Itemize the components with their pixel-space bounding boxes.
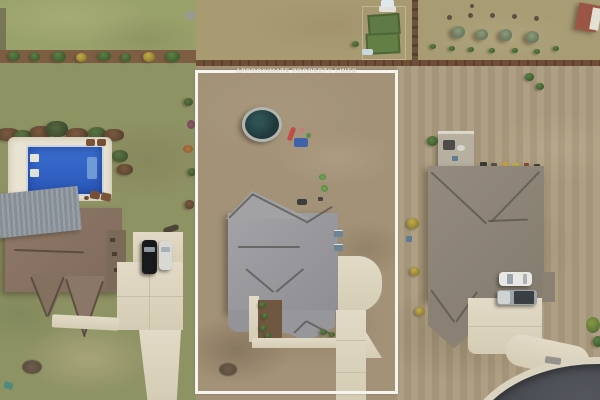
orchard-bush: [430, 44, 436, 49]
orchard-bush: [553, 46, 559, 51]
window: [112, 252, 117, 256]
dormant-shrub: [447, 15, 452, 20]
fence-left-edge: [0, 8, 6, 56]
boundary-shrub: [187, 120, 195, 129]
patio-table: [457, 145, 465, 151]
side-table: [84, 196, 89, 200]
orchard-bush: [534, 49, 540, 54]
hedge-bush: [98, 51, 111, 61]
left-house-metal-roof: [0, 186, 82, 238]
hedgerow-tree: [46, 121, 68, 137]
orchard-bush: [468, 47, 474, 52]
white-trailer: [381, 0, 394, 7]
garden-bench: [362, 49, 373, 55]
dormant-shrub: [512, 14, 517, 19]
pool-ladder-end: [87, 157, 97, 179]
hedge-bush: [30, 52, 40, 61]
patio-furniture: [443, 140, 455, 150]
yellow-bush: [415, 307, 425, 316]
orchard-bush: [449, 46, 455, 51]
window: [110, 238, 115, 242]
dormant-shrub: [490, 13, 495, 18]
hedge-bush: [121, 53, 131, 62]
expansion-joint: [117, 296, 183, 297]
lawn-bush: [536, 83, 544, 90]
pool-step: [30, 169, 39, 177]
lawn-bush: [525, 73, 534, 81]
property-lines-label: APPROXIMATE PROPERTY LINES: [196, 68, 397, 75]
utility-box: [406, 236, 412, 242]
orchard-bush: [512, 48, 518, 53]
rock: [185, 11, 196, 20]
white-car: [159, 241, 172, 270]
expansion-joint: [468, 326, 542, 327]
orchard-bush: [352, 41, 359, 47]
orchard-tree: [526, 31, 539, 43]
truck-bed: [514, 291, 534, 304]
lounge-chair: [97, 139, 106, 146]
boundary-shrub: [185, 200, 194, 209]
dormant-shrub: [468, 13, 473, 18]
right-house-side-bump: [542, 272, 555, 302]
side-yard-tree: [117, 164, 133, 175]
lounge-chair: [89, 190, 100, 199]
white-car: [499, 272, 532, 286]
orchard-tree: [452, 26, 465, 38]
pasture-top-left: [0, 0, 196, 57]
property-line-overlay: [195, 70, 398, 394]
black-suv: [142, 240, 157, 274]
orchard-bush: [489, 48, 495, 53]
car-rear-window: [523, 274, 527, 284]
aerial-photo: APPROXIMATE PROPERTY LINES: [0, 0, 600, 400]
back-bush: [427, 136, 438, 146]
yellow-bush: [407, 218, 419, 229]
patio-item: [452, 156, 458, 161]
orchard-tree: [476, 29, 488, 40]
roadside-bush: [593, 336, 600, 347]
car-windshield: [161, 247, 170, 252]
yellow-bush: [410, 267, 420, 276]
hedge-bush: [166, 51, 180, 62]
pool-step: [30, 154, 39, 162]
dormant-shrub: [534, 16, 539, 21]
suv-windshield: [144, 247, 155, 252]
hedge-bush: [52, 51, 66, 62]
side-yard-tree: [112, 150, 128, 162]
boundary-shrub: [184, 98, 193, 106]
fence-row-top: [196, 60, 600, 66]
roadside-bush: [586, 317, 600, 333]
hedge-bush: [143, 52, 155, 62]
dormant-shrub: [470, 4, 474, 8]
hedge-bush: [8, 51, 20, 61]
car-windshield: [507, 274, 513, 284]
fire-pit-patch: [22, 360, 42, 374]
lounge-chair: [86, 139, 95, 146]
garden-fence-vertical: [412, 0, 418, 62]
orchard-tree: [500, 29, 512, 41]
hedge-bush: [76, 53, 87, 62]
truck-cab: [498, 291, 510, 304]
boundary-shrub: [183, 145, 193, 153]
